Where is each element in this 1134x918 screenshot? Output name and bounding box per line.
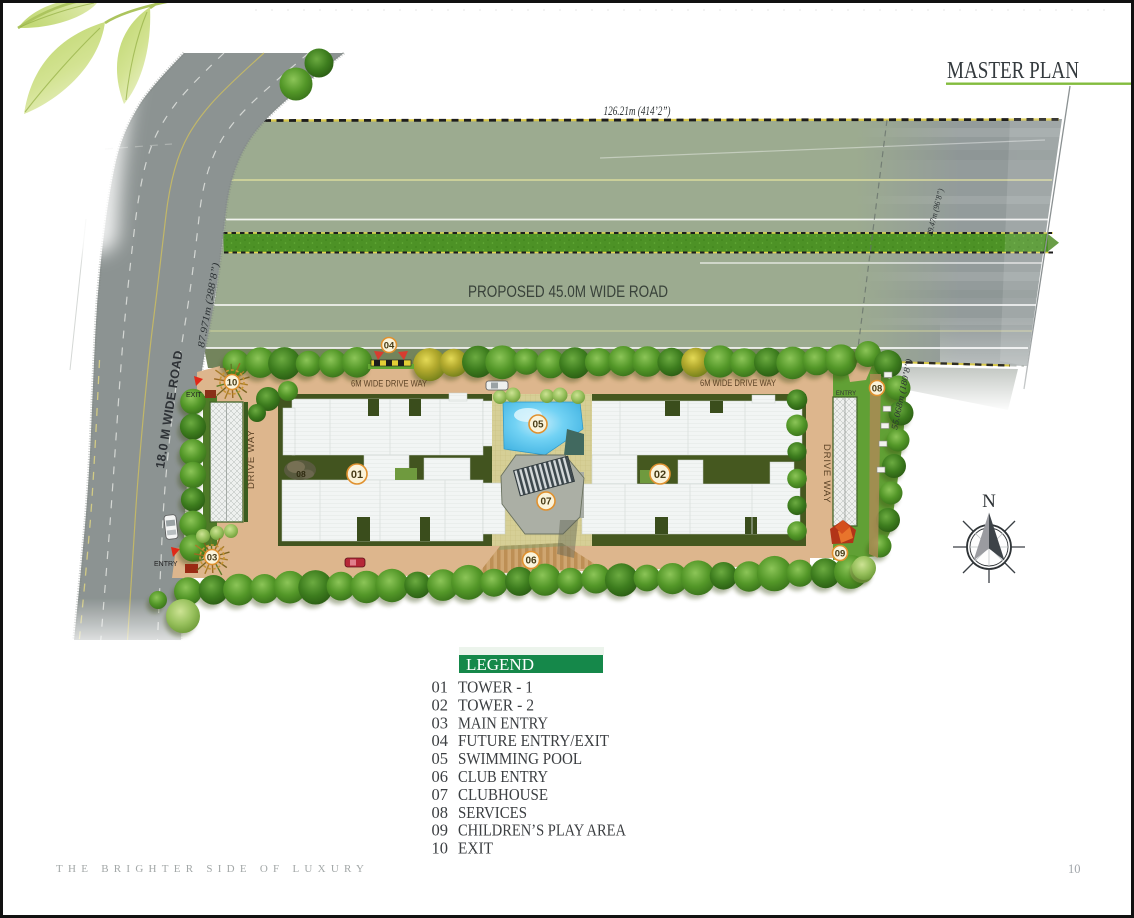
svg-text:PROPOSED 45.0M WIDE ROAD: PROPOSED 45.0M WIDE ROAD (468, 283, 668, 301)
svg-text:02: 02 (432, 695, 449, 714)
svg-text:02: 02 (654, 469, 666, 481)
svg-text:6M WIDE DRIVE WAY: 6M WIDE DRIVE WAY (351, 379, 427, 389)
svg-text:CLUBHOUSE: CLUBHOUSE (458, 785, 548, 804)
svg-text:09: 09 (835, 548, 846, 559)
svg-text:03: 03 (207, 552, 218, 563)
svg-text:EXIT: EXIT (186, 392, 202, 399)
svg-text:TOWER - 2: TOWER - 2 (458, 695, 534, 714)
svg-text:THE BRIGHTER SIDE OF LUXURY: THE BRIGHTER SIDE OF LUXURY (56, 863, 364, 875)
svg-text:09: 09 (432, 821, 449, 840)
svg-text:TOWER - 1: TOWER - 1 (458, 678, 533, 697)
svg-text:SWIMMING POOL: SWIMMING POOL (458, 749, 582, 768)
svg-text:04: 04 (384, 340, 395, 351)
svg-text:MAIN ENTRY: MAIN ENTRY (458, 713, 548, 732)
svg-text:06: 06 (525, 556, 537, 567)
svg-text:08: 08 (296, 469, 306, 479)
svg-text:LEGEND: LEGEND (466, 655, 534, 674)
svg-text:04: 04 (432, 731, 449, 750)
svg-text:ENTRY: ENTRY (836, 391, 856, 397)
svg-text:10: 10 (227, 377, 238, 388)
svg-text:CLUB ENTRY: CLUB ENTRY (458, 767, 548, 786)
svg-text:01: 01 (351, 469, 363, 481)
svg-text:10: 10 (1068, 862, 1081, 876)
svg-text:ENTRY: ENTRY (154, 561, 178, 568)
svg-text:EXIT: EXIT (458, 839, 493, 858)
svg-text:08: 08 (872, 383, 883, 394)
svg-text:03: 03 (432, 713, 449, 732)
svg-text:6M WIDE DRIVE WAY: 6M WIDE DRIVE WAY (700, 378, 776, 388)
svg-text:DRIVE WAY: DRIVE WAY (821, 444, 832, 503)
svg-text:SERVICES: SERVICES (458, 803, 527, 822)
svg-text:07: 07 (540, 497, 552, 508)
svg-text:MASTER PLAN: MASTER PLAN (947, 58, 1079, 84)
svg-text:06: 06 (432, 767, 449, 786)
svg-text:05: 05 (432, 749, 449, 768)
svg-text:08: 08 (432, 803, 449, 822)
svg-text:05: 05 (532, 420, 544, 431)
svg-text:10: 10 (432, 839, 449, 858)
svg-text:N: N (982, 491, 996, 512)
svg-text:01: 01 (432, 678, 449, 697)
svg-text:DRIVE WAY: DRIVE WAY (246, 430, 257, 489)
svg-text:FUTURE ENTRY/EXIT: FUTURE ENTRY/EXIT (458, 731, 609, 750)
svg-text:CHILDREN’S PLAY AREA: CHILDREN’S PLAY AREA (458, 821, 626, 840)
svg-text:07: 07 (432, 785, 449, 804)
svg-text:126.21m (414’2”): 126.21m (414’2”) (604, 104, 671, 118)
